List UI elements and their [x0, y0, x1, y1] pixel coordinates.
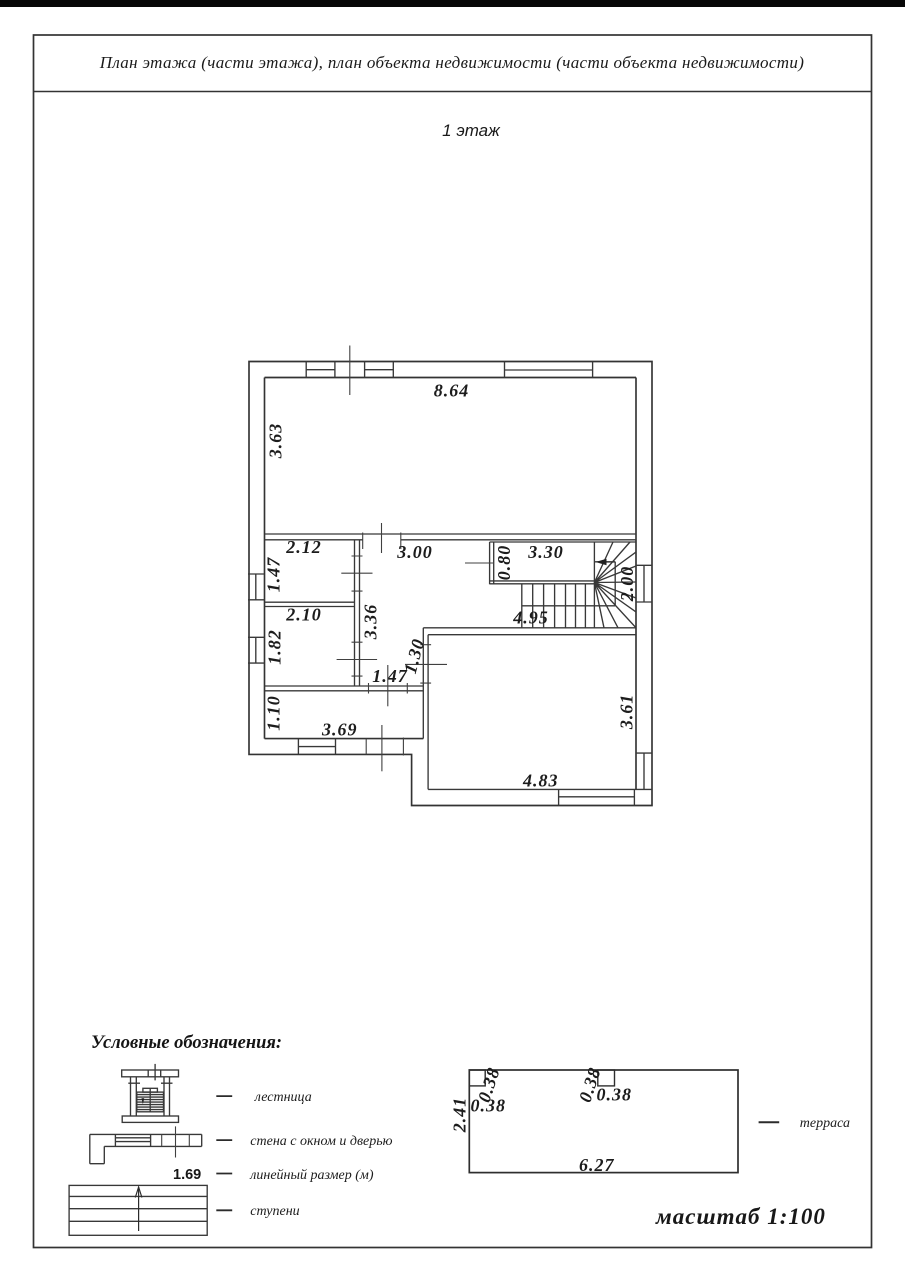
svg-text:2.12: 2.12 — [285, 537, 322, 557]
svg-text:3.63: 3.63 — [266, 423, 286, 460]
svg-text:1.82: 1.82 — [265, 629, 285, 665]
svg-text:8.64: 8.64 — [434, 381, 470, 401]
svg-text:масштаб 1:100: масштаб 1:100 — [655, 1204, 826, 1229]
svg-text:лестница: лестница — [254, 1090, 312, 1105]
svg-text:терраса: терраса — [800, 1116, 850, 1131]
svg-text:ступени: ступени — [250, 1204, 299, 1219]
svg-text:3.69: 3.69 — [321, 720, 358, 740]
svg-text:линейный размер (м): линейный размер (м) — [249, 1168, 374, 1183]
svg-text:3.61: 3.61 — [617, 694, 637, 731]
svg-text:4.95: 4.95 — [512, 608, 549, 628]
svg-text:4.83: 4.83 — [522, 771, 559, 791]
svg-text:2.10: 2.10 — [285, 605, 322, 625]
svg-text:1.30: 1.30 — [400, 636, 429, 675]
svg-text:2.00: 2.00 — [617, 566, 637, 603]
svg-text:6.27: 6.27 — [579, 1155, 615, 1175]
svg-text:Условные обозначения:: Условные обозначения: — [91, 1033, 282, 1053]
svg-text:2.41: 2.41 — [450, 1097, 470, 1134]
svg-text:3.30: 3.30 — [527, 542, 564, 562]
svg-text:0.80: 0.80 — [494, 545, 514, 581]
svg-text:3.00: 3.00 — [396, 542, 433, 562]
svg-text:3.36: 3.36 — [361, 604, 381, 641]
svg-text:План этажа (части этажа), план: План этажа (части этажа), план объекта н… — [99, 53, 805, 72]
svg-text:0.38: 0.38 — [597, 1085, 633, 1105]
svg-text:1.69: 1.69 — [173, 1167, 201, 1183]
svg-text:1 этаж: 1 этаж — [442, 121, 501, 140]
svg-text:стена с окном и дверью: стена с окном и дверью — [250, 1134, 392, 1149]
svg-text:1.47: 1.47 — [264, 557, 284, 593]
svg-text:1.10: 1.10 — [264, 695, 284, 731]
svg-text:0.38: 0.38 — [471, 1096, 507, 1116]
